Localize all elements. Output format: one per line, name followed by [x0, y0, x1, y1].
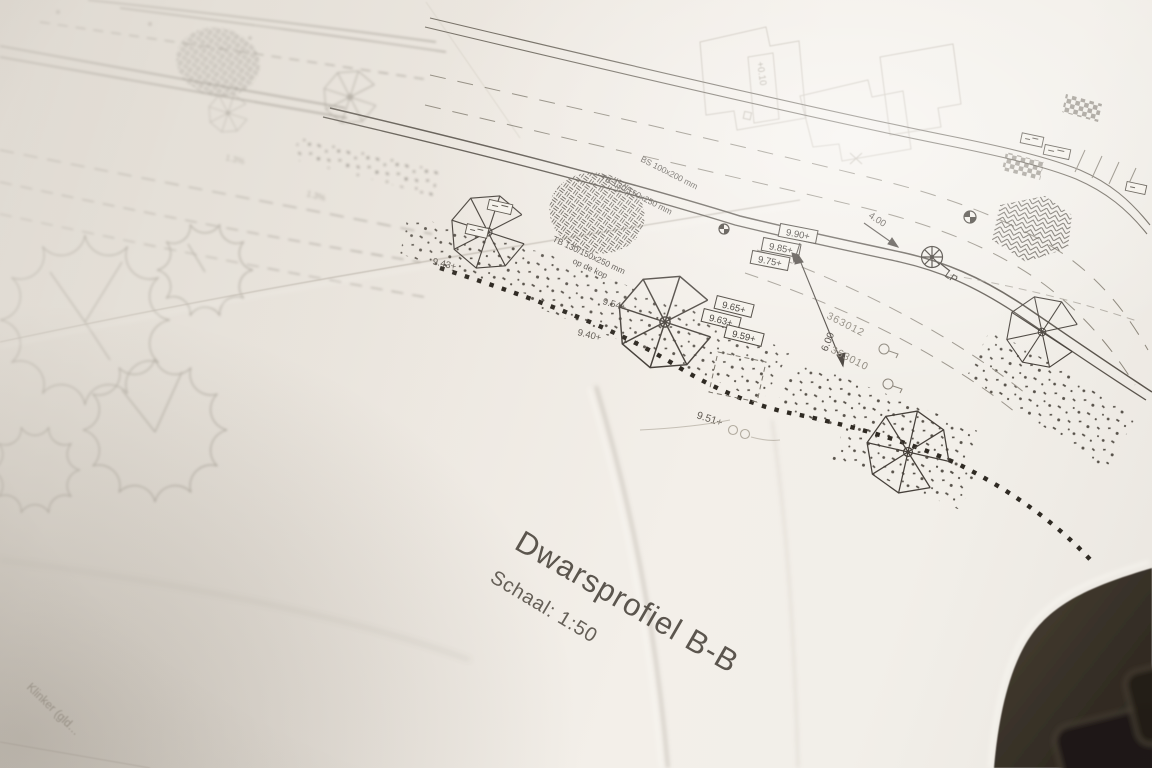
paving-checker-patch	[1062, 94, 1102, 122]
background-sheet-blurry: 1.3% 1.3%	[0, 0, 446, 513]
elevation-label: 9.51+	[695, 409, 724, 429]
material-top: BS 100x200 mm	[639, 154, 700, 191]
boundary-bold-dotted	[440, 268, 1095, 565]
x-mark	[850, 153, 862, 164]
building-outlines-faint: +0.10	[426, 2, 961, 164]
small-label-box	[1043, 144, 1071, 159]
desk-corner	[990, 562, 1152, 768]
lamppost-label: LP	[942, 269, 959, 286]
slope-label: 1.3%	[225, 152, 247, 166]
legend-partial-text: Klinker (gld…	[24, 682, 82, 739]
building-level-label: +0.10	[754, 61, 768, 86]
photo-of-blueprint: 1.3% 1.3% +0.10	[0, 0, 1152, 768]
small-label-box	[1125, 182, 1146, 195]
elevation-box: 9.90+	[778, 224, 818, 245]
paving-weave-patch	[541, 163, 653, 263]
slope-label: 1.3%	[305, 188, 327, 203]
building-3	[880, 44, 961, 135]
title-block: Dwarsprofiel B-B Schaal: 1:50 Klinker (g…	[24, 524, 745, 738]
small-label-box	[487, 199, 513, 214]
blueprint-drawing: 1.3% 1.3% +0.10	[0, 0, 1152, 768]
tree-canopies	[0, 224, 253, 513]
plan-sharp: LP 6.00 4.00 363012 363010 BS 100x200 mm…	[323, 18, 1152, 565]
small-label-box	[1020, 133, 1044, 147]
building-2	[800, 80, 911, 161]
cable-id-lower: 363010	[829, 344, 871, 373]
faded-circle-marks	[640, 420, 780, 440]
planting-dots-blurry	[292, 135, 440, 196]
small-square-mark	[743, 111, 751, 119]
